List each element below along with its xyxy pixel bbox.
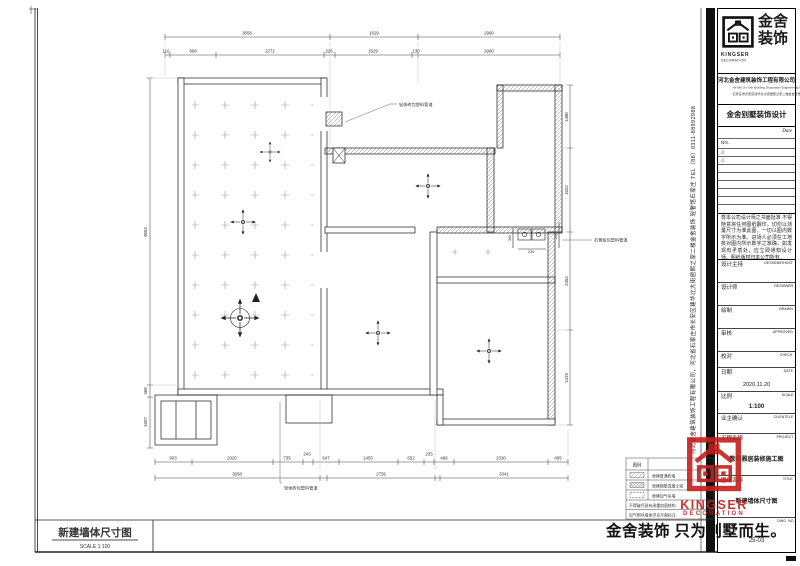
field-en: APPROVED	[773, 330, 793, 334]
field-label: 日期	[721, 368, 732, 376]
extra-plus-marks	[452, 249, 491, 255]
field-label: 业主确认	[721, 414, 743, 422]
field-label: 比例	[721, 392, 732, 400]
field-en: DESIGNER	[774, 284, 793, 288]
section-title-row: 金舍别墅装饰设计	[718, 104, 795, 127]
brand-en2: DECORATION	[721, 59, 746, 63]
kingser-red-stamp: KINGSER DECORATION	[663, 437, 765, 518]
note-pipe-right: 石膏板包塑料管道	[594, 237, 628, 244]
dim-label: 2272	[265, 49, 275, 54]
company-en: He Bei Jin She Building Decoration Engin…	[733, 86, 781, 90]
stair-box	[155, 395, 217, 445]
field-label: 校对	[721, 352, 732, 360]
dim-label: 647	[322, 456, 330, 461]
company-name: 河北金舍建筑装饰工程有限公司	[718, 76, 795, 84]
stamp-en2: DECORATION	[663, 511, 765, 518]
field-clientele: 业主确认 CLIENTELE	[718, 413, 795, 434]
dim-label: 2755	[376, 472, 386, 477]
rev-mark: △	[721, 149, 725, 155]
ceiling-grid-marks	[192, 92, 314, 380]
field-date: 日期 DATE 2020.11.20	[718, 367, 795, 392]
rev-mark: △	[721, 157, 725, 163]
field-en: SCALE	[781, 393, 793, 397]
footer-title-box: 新建墙体尺寸图 SCALE 1:100	[52, 526, 138, 550]
footer-drawing-title: 新建墙体尺寸图	[58, 526, 132, 539]
field-scale: 比例 SCALE 1:100	[718, 391, 795, 414]
field-en: DESIGNERHOST	[764, 261, 793, 265]
dim-label: 2990	[484, 31, 494, 36]
brand-cn2: 装饰	[758, 31, 788, 47]
brand-area: KINGSER DECORATION 金舍 装饰	[718, 11, 795, 74]
company-sub: 石家庄市长安区建华北大街居熙之家二楼金舍装饰轻奢馆	[733, 92, 781, 96]
field-label: 审核	[721, 329, 732, 337]
dim-label: 3658	[232, 472, 242, 477]
dim-label: 903	[169, 456, 177, 461]
legend-header: 图例	[633, 462, 642, 469]
dim-label: 110	[163, 49, 171, 54]
field-en: DRAWN	[780, 307, 793, 311]
field-en: DATE	[784, 369, 793, 373]
field-value: 2020.11.20	[718, 382, 795, 388]
company-area: 河北金舍建筑装饰工程有限公司 He Bei Jin She Building D…	[718, 73, 795, 105]
field-designer-host: 设计主持 DESIGNERHOST	[718, 259, 795, 283]
dim-label: 368	[143, 387, 148, 395]
dim-label: 2990	[484, 49, 494, 54]
field-en: CLIENTELE	[773, 415, 793, 419]
dim-label: 495	[554, 456, 562, 461]
field-label: 绘制	[721, 306, 732, 314]
field-label: 设计主持	[721, 260, 743, 268]
dim-label: 3658	[242, 31, 252, 36]
section-title: 金舍别墅装饰设计	[718, 109, 795, 120]
dim-label: 2330	[496, 456, 506, 461]
disclaimer-area: 尊本公司设计师之书面批准 不得随意将任何图纸翻印。切勿以测量尺寸为准此图，一切以…	[718, 213, 795, 260]
field-value: 1:100	[718, 404, 795, 410]
footer-scale: SCALE 1:100	[80, 544, 111, 550]
dim-label: 496	[440, 456, 448, 461]
brand-cn1: 金舍	[758, 14, 788, 30]
field-en: PROJECT	[776, 435, 793, 439]
dim-label: 362	[508, 235, 512, 241]
disclaimer-text: 尊本公司设计师之书面批准 不得随意将任何图纸翻印。切勿以测量尺寸为准此图，一切以…	[721, 216, 792, 262]
dim-label: 2452	[564, 276, 569, 286]
field-en: TITLE	[783, 477, 793, 481]
field-check: 校对 CHECK	[718, 351, 795, 368]
date-label: Date	[782, 129, 792, 134]
dim-label: 230	[528, 250, 534, 254]
dim-label: 1607	[143, 417, 148, 427]
slogan-text: 金舍装饰 只为别墅而生。	[606, 519, 800, 541]
dim-label: 735	[283, 456, 291, 461]
note-pipe-top: 轻体砖包塑料管道	[399, 101, 433, 108]
dim-label: 1629	[368, 49, 378, 54]
field-drawn: 绘制 DRAWN	[718, 305, 795, 329]
dim-label: 130	[412, 49, 420, 54]
corner-mark	[786, 556, 796, 561]
dim-label: 1419	[564, 373, 569, 383]
dim-label: 1629	[369, 31, 379, 36]
dim-label: 652	[407, 456, 415, 461]
dim-label: 9663	[143, 227, 148, 237]
brand-en1: KINGSER	[721, 52, 749, 58]
dim-label: 1480	[564, 112, 569, 122]
dim-label: 225	[325, 49, 333, 54]
dim-label: 3341	[499, 472, 509, 477]
dim-label: 250	[554, 233, 558, 239]
field-label: 设计师	[721, 283, 738, 291]
stamp-en1: KINGSER	[663, 500, 765, 511]
dim-label: 2020	[227, 456, 237, 461]
field-designer: 设计师 DESIGNER	[718, 282, 795, 306]
kingser-logo-icon	[722, 15, 754, 51]
field-en: CHECK	[780, 353, 793, 357]
drawing-sheet: 3658 1629 2990 110 968 2272 225 1629 130…	[0, 0, 800, 566]
kingser-stamp-icon	[687, 437, 741, 495]
note-pipe-bottom: 轻体砖包塑料管道	[284, 485, 318, 492]
dim-label: 1622	[564, 185, 569, 195]
no-label: NO.	[721, 140, 729, 145]
field-approved: 审核 APPROVED	[718, 328, 795, 352]
dim-label: 235	[425, 452, 433, 457]
dim-label: 1455	[363, 456, 373, 461]
dim-label: 968	[189, 49, 197, 54]
dim-label: 243	[303, 452, 311, 457]
